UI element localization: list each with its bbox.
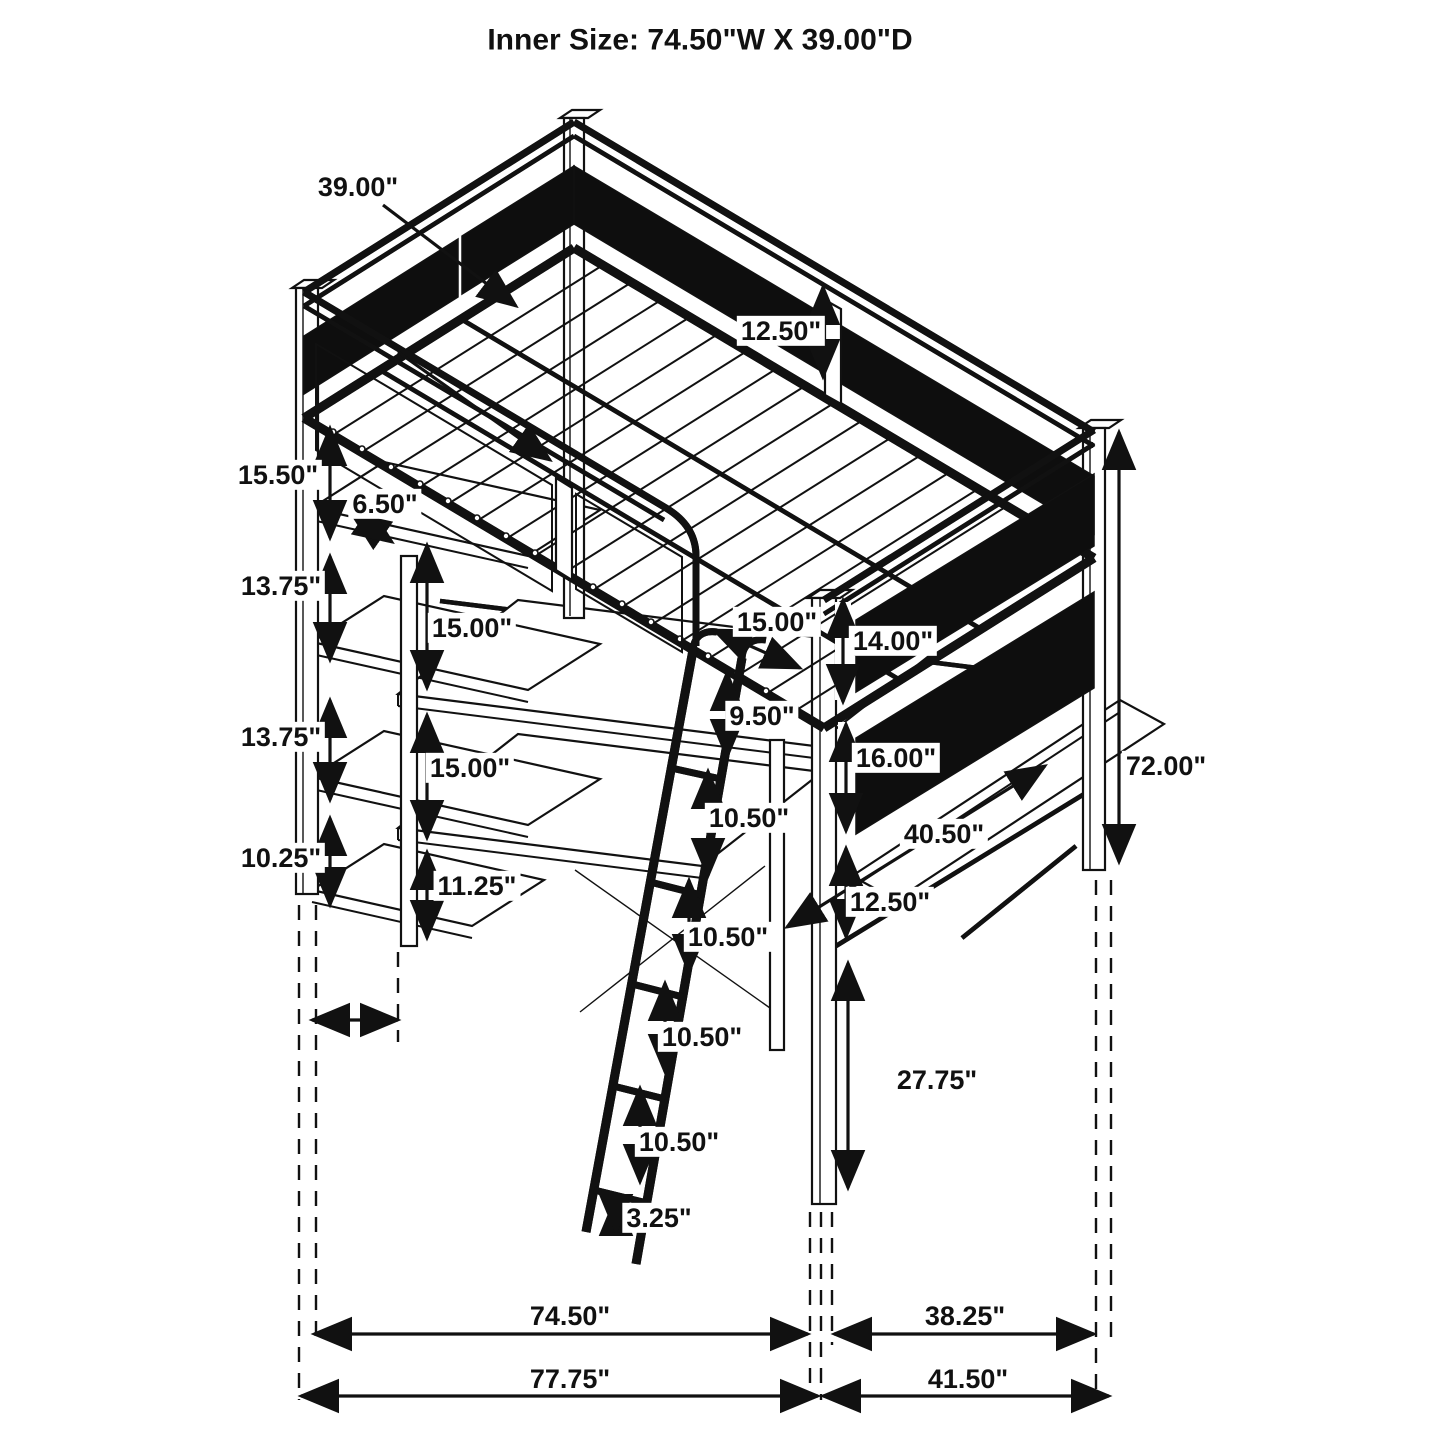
rear-post-cap <box>560 110 600 118</box>
dim-label-shelf-gap-upper: 13.75" <box>237 571 325 601</box>
dim-label-bed-depth: 39.00" <box>314 172 402 202</box>
dim-label-inner-depth: 38.25" <box>921 1301 1009 1331</box>
dim-label-desk-gap-lower: 15.00" <box>426 753 514 783</box>
dim-label-desk-diagonal: 40.50" <box>900 819 988 849</box>
dim-label-guardrail-height: 12.50" <box>737 316 825 346</box>
dim-label-shelf-gap-lower: 13.75" <box>237 722 325 752</box>
dim-label-rung-gap-2: 10.50" <box>684 922 772 952</box>
dim-label-outer-depth: 41.50" <box>924 1364 1012 1394</box>
dim-label-leg-lower: 27.75" <box>893 1065 981 1095</box>
loft-bed-dimension-diagram: Inner Size: 74.50"W X 39.00"D 39.00" 12.… <box>0 0 1445 1445</box>
isometric-line-art <box>0 0 1445 1445</box>
dim-label-foot-mesh-height: 16.00" <box>852 743 940 773</box>
dim-label-rung-gap-1: 10.50" <box>705 803 793 833</box>
dim-label-shelf-bottom-gap: 10.25" <box>237 843 325 873</box>
dim-label-shelf-depth: 6.50" <box>348 489 421 519</box>
dim-label-overall-height: 72.00" <box>1122 751 1210 781</box>
dim-label-rung-gap-3: 10.50" <box>658 1022 746 1052</box>
dim-label-deck-to-rung: 9.50" <box>725 701 798 731</box>
front-leg <box>812 598 836 1204</box>
dim-label-rung-gap-4: 10.50" <box>635 1127 723 1157</box>
dim-label-ladder-opening: 15.00" <box>733 607 821 637</box>
dim-label-deck-to-shelf: 15.50" <box>234 460 322 490</box>
dim-label-inner-width: 74.50" <box>526 1301 614 1331</box>
diagram-title: Inner Size: 74.50"W X 39.00"D <box>483 23 916 57</box>
dim-label-ladder-foot: 3.25" <box>622 1203 695 1233</box>
dim-label-foot-rail-height: 14.00" <box>849 626 937 656</box>
dim-label-outer-width: 77.75" <box>526 1364 614 1394</box>
dim-label-desk-gap-upper: 15.00" <box>428 613 516 643</box>
dim-label-post-to-floor: 11.25" <box>434 871 521 901</box>
mid-post-front <box>556 478 572 580</box>
mid-post-back-right <box>825 300 841 404</box>
shelf-post <box>401 556 417 946</box>
dim-label-desk-height-gap: 12.50" <box>846 887 934 917</box>
